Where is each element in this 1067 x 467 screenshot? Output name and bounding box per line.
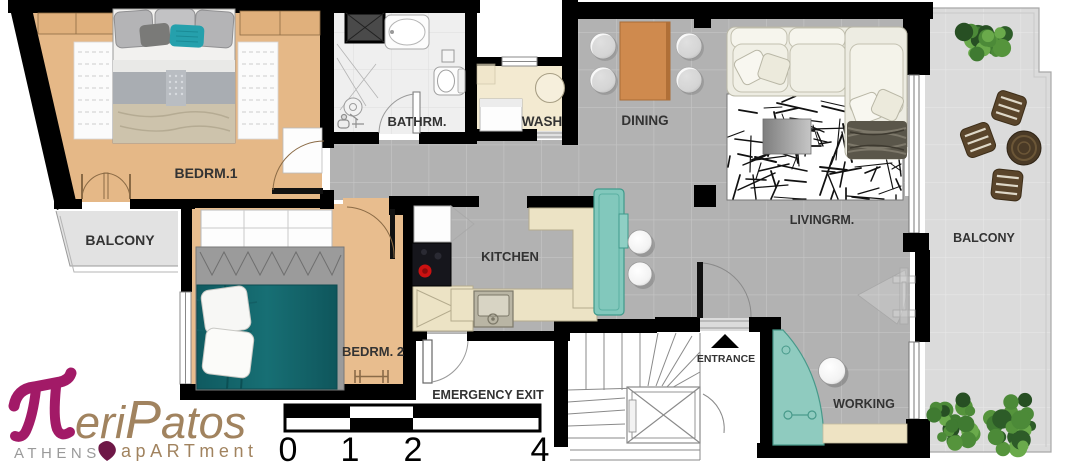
svg-text:BEDRM.1: BEDRM.1	[174, 165, 237, 181]
svg-text:EMERGENCY EXIT: EMERGENCY EXIT	[432, 388, 544, 402]
svg-text:BALCONY: BALCONY	[953, 231, 1015, 245]
svg-text:DINING: DINING	[621, 113, 668, 128]
svg-text:4: 4	[531, 431, 550, 467]
svg-text:BALCONY: BALCONY	[85, 232, 155, 248]
svg-text:1: 1	[341, 431, 360, 467]
svg-text:ATHENS: ATHENS	[14, 445, 101, 462]
svg-text:apARTment: apARTment	[121, 441, 253, 461]
svg-text:BEDRM. 2: BEDRM. 2	[342, 344, 404, 359]
svg-text:LIVINGRM.: LIVINGRM.	[790, 213, 855, 227]
svg-text:ENTRANCE: ENTRANCE	[697, 353, 755, 365]
svg-text:2: 2	[404, 431, 423, 467]
svg-text:0: 0	[279, 431, 298, 467]
svg-text:BATHRM.: BATHRM.	[388, 114, 447, 129]
svg-text:WASH: WASH	[522, 114, 563, 129]
svg-text:WORKING: WORKING	[833, 397, 895, 411]
svg-text:KITCHEN: KITCHEN	[481, 249, 539, 264]
